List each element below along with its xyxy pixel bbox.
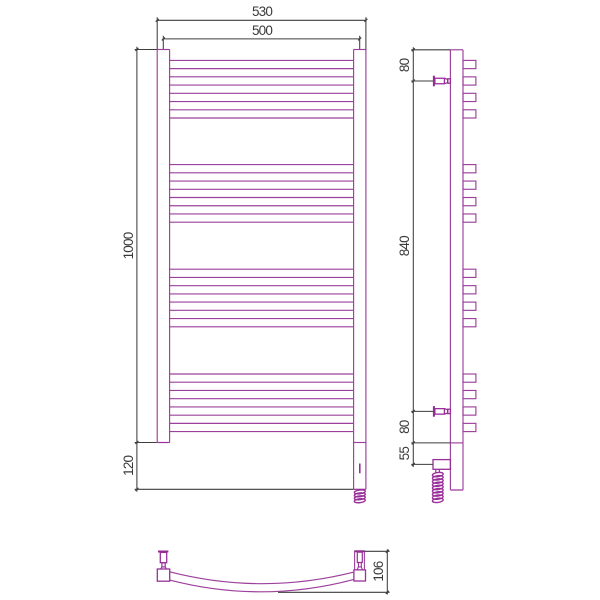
svg-text:530: 530 — [252, 4, 272, 19]
svg-text:120: 120 — [121, 455, 136, 475]
svg-text:80: 80 — [397, 58, 412, 72]
svg-text:80: 80 — [397, 420, 412, 434]
svg-text:840: 840 — [397, 236, 412, 256]
svg-text:106: 106 — [371, 561, 386, 581]
svg-text:500: 500 — [252, 23, 272, 38]
svg-text:1000: 1000 — [121, 232, 136, 259]
svg-text:55: 55 — [397, 447, 412, 461]
